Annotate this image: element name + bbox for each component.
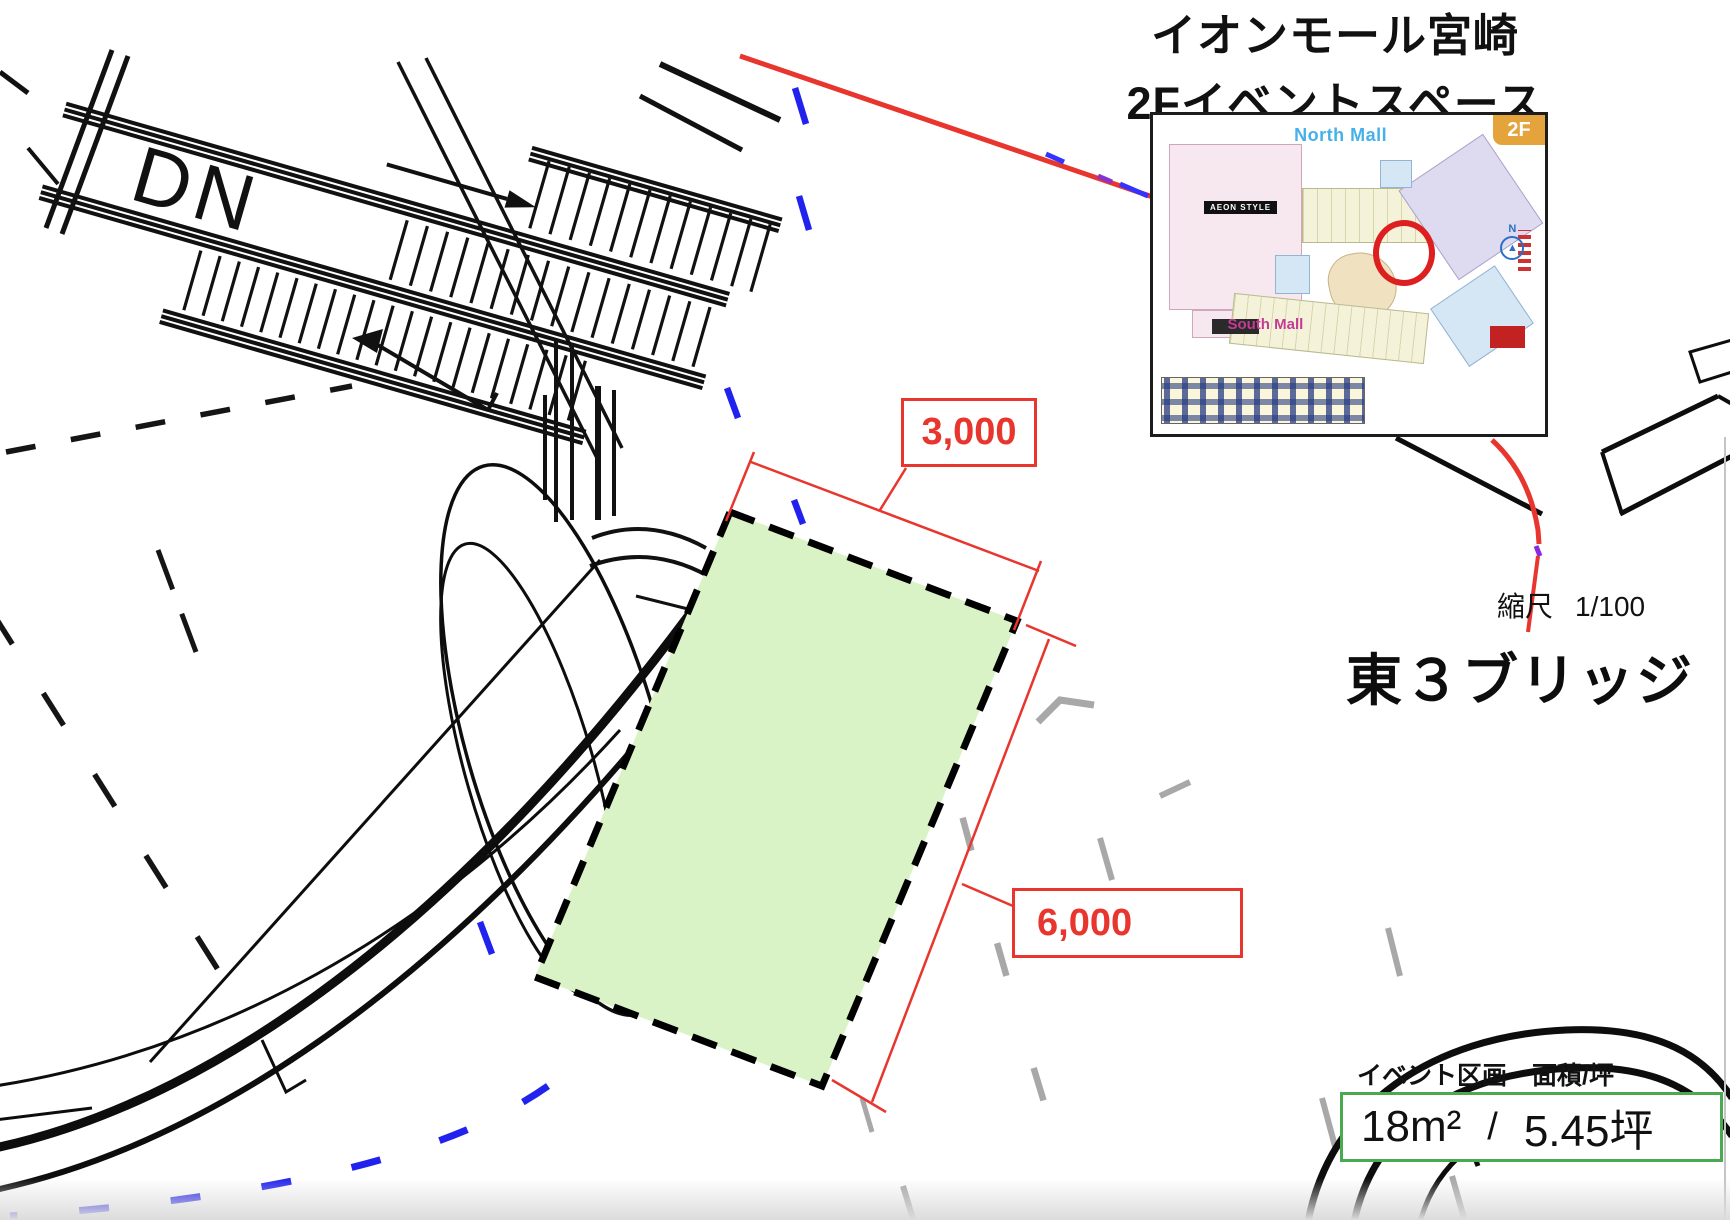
scale-value: 1/100 — [1575, 591, 1645, 622]
map-block-blue-north — [1380, 160, 1411, 189]
location-title: 東３ブリッジ — [1320, 636, 1720, 717]
compass-icon: N ▲ — [1499, 223, 1525, 260]
mall-map-inset: North Mall South Mall 2F AEON STYLE N ▲ — [1150, 112, 1548, 437]
area-tsubo-value: 5.45坪 — [1524, 1095, 1654, 1159]
event-location-circle — [1373, 220, 1435, 286]
dashed-guides-black — [0, 386, 352, 1014]
dimension-depth-label: 6,000 — [1012, 888, 1243, 958]
map-block-blue-center — [1275, 255, 1310, 293]
area-value-box: 18m² / 5.45坪 — [1340, 1092, 1723, 1162]
dimension-width-label: 3,000 — [901, 398, 1037, 467]
compass-ring-icon: ▲ — [1500, 236, 1524, 260]
scale-caption: 縮尺 — [1497, 591, 1553, 622]
compass-n-label: N — [1499, 223, 1525, 235]
arrow-left-icon — [352, 329, 383, 353]
map-legend — [1161, 377, 1365, 425]
aeon-style-label: AEON STYLE — [1204, 201, 1277, 214]
page-title-line1: イオンモール宮崎 — [1085, 2, 1585, 70]
event-area — [535, 512, 1017, 1086]
scale-label: 縮尺1/100 — [1497, 585, 1645, 625]
dimension-depth-value: 6,000 — [1037, 902, 1132, 945]
wall-lines — [0, 50, 708, 612]
page-bottom-fade — [0, 1178, 1730, 1220]
dn-label: DN — [123, 129, 270, 250]
event-area-caption: イベント区画 面積/坪 — [1357, 1056, 1614, 1092]
map-block-sports-store — [1490, 326, 1525, 348]
dimension-width-value: 3,000 — [921, 411, 1016, 454]
area-sqm-value: 18m² — [1361, 1102, 1461, 1152]
area-separator: / — [1487, 1106, 1498, 1149]
floor-badge: 2F — [1493, 115, 1545, 145]
stairs-structure: DN — [15, 21, 782, 479]
south-mall-label: South Mall — [1227, 316, 1303, 333]
floorplan-page: DN — [0, 0, 1730, 1220]
north-mall-label: North Mall — [1294, 125, 1387, 146]
map-block-blue-east — [1430, 265, 1534, 367]
